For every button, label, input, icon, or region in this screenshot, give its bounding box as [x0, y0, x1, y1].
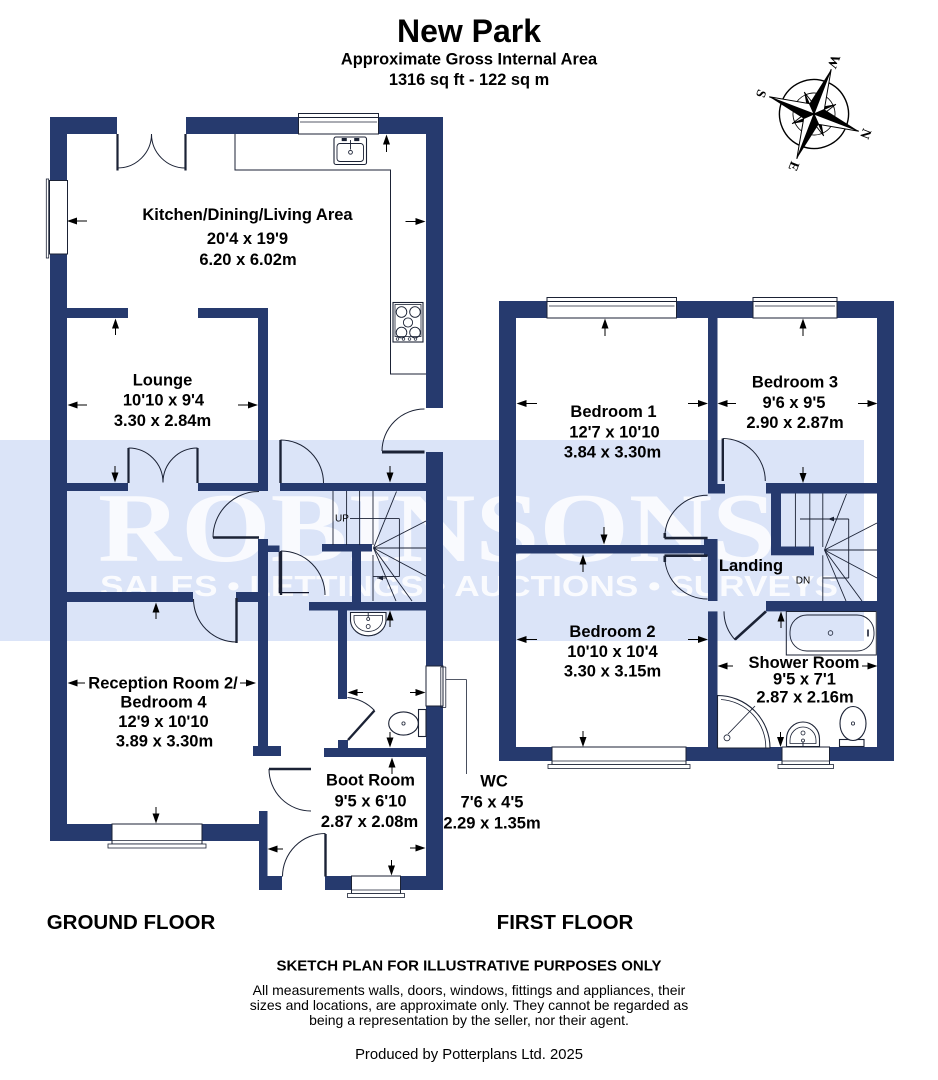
svg-text:9'6 x 9'5: 9'6 x 9'5	[763, 394, 826, 412]
svg-text:Shower Room: Shower Room	[749, 654, 860, 672]
svg-text:SALES • LETTINGS • AUCTIONS •: SALES • LETTINGS • AUCTIONS • SURVEYS	[100, 571, 838, 603]
svg-text:Bedroom 1: Bedroom 1	[570, 403, 656, 421]
svg-text:SKETCH PLAN FOR ILLUSTRATIVE P: SKETCH PLAN FOR ILLUSTRATIVE PURPOSES ON…	[276, 958, 661, 975]
svg-text:Landing: Landing	[719, 557, 783, 575]
svg-text:1316 sq ft - 122 sq m: 1316 sq ft - 122 sq m	[389, 71, 549, 89]
svg-text:3.89 x 3.30m: 3.89 x 3.30m	[116, 733, 213, 751]
svg-text:Boot Room: Boot Room	[326, 772, 415, 790]
svg-text:UP: UP	[335, 514, 349, 525]
svg-text:12'7 x 10'10: 12'7 x 10'10	[569, 424, 659, 442]
svg-text:DN: DN	[796, 576, 810, 587]
svg-text:Reception Room 2/: Reception Room 2/	[88, 675, 238, 693]
svg-text:Produced by Potterplans Ltd. 2: Produced by Potterplans Ltd. 2025	[355, 1047, 583, 1063]
svg-text:12'9 x 10'10: 12'9 x 10'10	[118, 713, 208, 731]
svg-text:2.90 x 2.87m: 2.90 x 2.87m	[746, 414, 843, 432]
svg-text:9'5 x 7'1: 9'5 x 7'1	[773, 671, 836, 689]
svg-text:3.84 x 3.30m: 3.84 x 3.30m	[564, 444, 661, 462]
svg-text:7'6 x 4'5: 7'6 x 4'5	[461, 794, 524, 812]
svg-text:Bedroom 3: Bedroom 3	[752, 374, 838, 392]
svg-text:2.87 x 2.16m: 2.87 x 2.16m	[756, 689, 853, 707]
svg-text:10'10 x 10'4: 10'10 x 10'4	[567, 643, 658, 661]
svg-text:Bedroom 2: Bedroom 2	[569, 623, 655, 641]
svg-text:20'4 x 19'9: 20'4 x 19'9	[207, 230, 288, 248]
svg-text:New Park: New Park	[397, 13, 541, 49]
svg-text:3.30 x 2.84m: 3.30 x 2.84m	[114, 412, 211, 430]
svg-text:2.87 x 2.08m: 2.87 x 2.08m	[321, 813, 418, 831]
svg-text:All measurements walls, doors,: All measurements walls, doors, windows, …	[253, 982, 686, 998]
svg-text:GROUND FLOOR: GROUND FLOOR	[47, 911, 216, 934]
svg-text:FIRST FLOOR: FIRST FLOOR	[497, 911, 634, 934]
svg-text:sizes and locations, are appro: sizes and locations, are approximate onl…	[250, 997, 688, 1013]
svg-text:being a representation by the: being a representation by the seller, no…	[309, 1012, 629, 1028]
svg-text:Bedroom 4: Bedroom 4	[120, 694, 207, 712]
svg-text:2.29 x 1.35m: 2.29 x 1.35m	[443, 815, 540, 833]
svg-text:Approximate Gross Internal Are: Approximate Gross Internal Area	[341, 51, 598, 69]
svg-text:9'5 x 6'10: 9'5 x 6'10	[334, 793, 406, 811]
svg-text:Lounge: Lounge	[133, 372, 193, 390]
svg-text:3.30 x 3.15m: 3.30 x 3.15m	[564, 663, 661, 681]
svg-text:10'10 x 9'4: 10'10 x 9'4	[123, 392, 205, 410]
svg-text:Kitchen/Dining/Living Area: Kitchen/Dining/Living Area	[142, 206, 353, 224]
svg-text:6.20 x 6.02m: 6.20 x 6.02m	[199, 251, 296, 269]
svg-text:WC: WC	[480, 773, 508, 791]
